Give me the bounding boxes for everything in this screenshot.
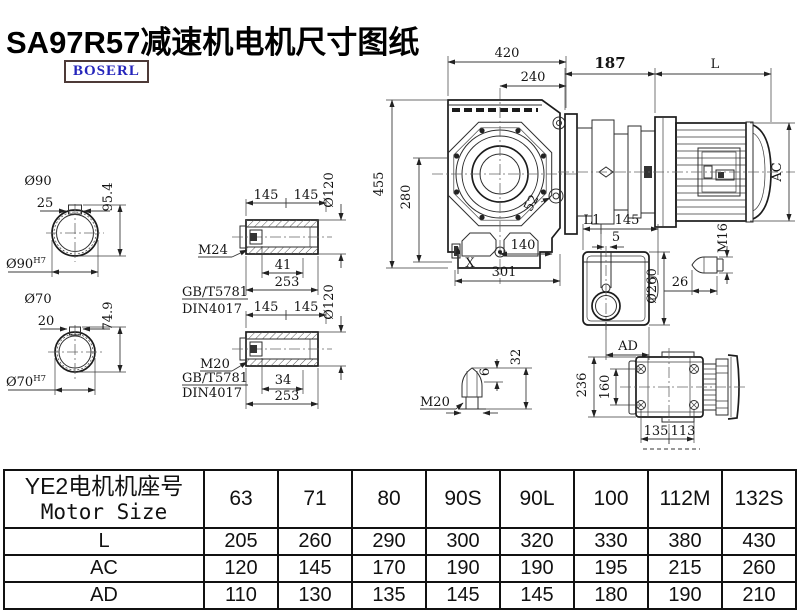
dim-455: 455 [372, 172, 387, 197]
gearbox-top-view: 236 160 135 113 [575, 348, 748, 449]
motor-dimension-table: YE2电机机座号 Motor Size 63 71 80 90S 90L 100… [3, 469, 797, 610]
dim-160: 160 [598, 375, 613, 400]
table-cell: 260 [278, 528, 352, 555]
table-cell: 170 [352, 555, 426, 582]
row-label: L [4, 528, 204, 555]
dim-280: 280 [399, 185, 414, 210]
dim-145-d: 145 [294, 300, 319, 315]
table-header-cell: 90S [426, 470, 500, 528]
dim-dia-120-b: Ø120 [322, 284, 337, 319]
gearbox-side-view: L1 145 5 Ø260 AD [583, 213, 670, 360]
table-cell: 145 [278, 555, 352, 582]
table-header-motor-size: YE2电机机座号 Motor Size [4, 470, 204, 528]
label-m20: M20 [200, 357, 230, 372]
technical-drawing: Ø90 25 95.4 Ø90H7 Ø70 [0, 0, 800, 462]
table-cell: 145 [426, 582, 500, 609]
table-cell: 195 [574, 555, 648, 582]
dim-AC: AC [770, 162, 785, 182]
table-header-cell: 90L [500, 470, 574, 528]
label-din-a: DIN4017 [182, 302, 242, 317]
dim-253-a: 253 [275, 275, 300, 290]
table-cell: 145 [500, 582, 574, 609]
label-m20-detail: M20 [420, 395, 450, 410]
mark-x: X [465, 256, 475, 271]
dim-dia-90: Ø90 [24, 174, 51, 189]
gearbox-front-view: 420 240 455 280 52 140 301 X [372, 46, 578, 286]
row-label: AD [4, 582, 204, 609]
dim-bore-70: Ø70H7 [6, 374, 46, 390]
table-cell: 330 [574, 528, 648, 555]
dim-145-b: 145 [294, 188, 319, 203]
dim-M16: M16 [716, 223, 731, 253]
table-cell: 210 [722, 582, 796, 609]
dim-41: 41 [275, 258, 292, 273]
motor-size-label-cn: YE2电机机座号 [5, 473, 203, 499]
dim-253-b: 253 [275, 389, 300, 404]
dim-AD: AD [617, 339, 638, 354]
table-cell: 215 [648, 555, 722, 582]
dim-26: 26 [672, 275, 689, 290]
dim-32: 32 [509, 349, 524, 366]
dim-key-20: 20 [38, 314, 55, 329]
dim-5: 5 [612, 230, 620, 245]
motor-size-label-en: Motor Size [5, 499, 203, 525]
table-cell: 190 [426, 555, 500, 582]
dim-113: 113 [671, 424, 696, 439]
label-m24: M24 [198, 243, 228, 258]
row-label: AC [4, 555, 204, 582]
dim-135: 135 [644, 424, 669, 439]
dim-236: 236 [575, 373, 590, 398]
dim-420: 420 [495, 46, 520, 61]
bolt-detail-m20: M20 6 32 [420, 349, 532, 413]
table-cell: 190 [500, 555, 574, 582]
table-row-AD: AD 110 130 135 145 145 180 190 210 [4, 582, 796, 609]
table-cell: 380 [648, 528, 722, 555]
dim-187: 187 [594, 54, 625, 72]
page: SA97R57减速机电机尺寸图纸 BOSERL Ø90 25 9 [0, 0, 800, 613]
label-gbt-a: GB/T5781 [182, 285, 248, 300]
dim-301: 301 [492, 265, 517, 280]
dim-key-depth-74: 74.9 [101, 302, 116, 331]
table-header-cell: 80 [352, 470, 426, 528]
dim-dia-70: Ø70 [24, 292, 51, 307]
dim-bore-90: Ø90H7 [6, 256, 46, 272]
dim-key-25: 25 [37, 196, 54, 211]
table-header-cell: 112M [648, 470, 722, 528]
dim-6: 6 [478, 368, 493, 376]
dim-L: L [711, 57, 720, 72]
label-din-b: DIN4017 [182, 386, 242, 401]
table-header-cell: 132S [722, 470, 796, 528]
table-cell: 120 [204, 555, 278, 582]
table-row-L: L 205 260 290 300 320 330 380 430 [4, 528, 796, 555]
table-header-row: YE2电机机座号 Motor Size 63 71 80 90S 90L 100… [4, 470, 796, 528]
shaft-section-70: Ø70 20 74.9 Ø70H7 [6, 292, 126, 395]
table-header-cell: 100 [574, 470, 648, 528]
dim-145-c: 145 [254, 300, 279, 315]
dim-34: 34 [275, 373, 292, 388]
dim-140: 140 [511, 238, 536, 253]
table-cell: 190 [648, 582, 722, 609]
bolt-detail-m16: M16 26 [664, 223, 733, 295]
table-cell: 205 [204, 528, 278, 555]
table-cell: 130 [278, 582, 352, 609]
table-cell: 290 [352, 528, 426, 555]
dim-240: 240 [521, 70, 546, 85]
dim-key-depth-95: 95.4 [101, 183, 116, 212]
motor-side-view: 187 L AC [558, 54, 795, 234]
dim-L1: L1 [584, 213, 601, 228]
table-cell: 320 [500, 528, 574, 555]
dim-145-a: 145 [254, 188, 279, 203]
table-cell: 300 [426, 528, 500, 555]
dim-145-side: 145 [615, 213, 640, 228]
table-cell: 430 [722, 528, 796, 555]
table-cell: 135 [352, 582, 426, 609]
table-header-cell: 71 [278, 470, 352, 528]
dim-dia-120-a: Ø120 [322, 172, 337, 207]
table-cell: 110 [204, 582, 278, 609]
dim-dia-260: Ø260 [645, 268, 660, 303]
table-header-cell: 63 [204, 470, 278, 528]
shaft-section-90: Ø90 25 95.4 Ø90H7 [6, 174, 126, 277]
label-gbt-b: GB/T5781 [182, 371, 248, 386]
table-cell: 180 [574, 582, 648, 609]
table-cell: 260 [722, 555, 796, 582]
table-row-AC: AC 120 145 170 190 190 195 215 260 [4, 555, 796, 582]
